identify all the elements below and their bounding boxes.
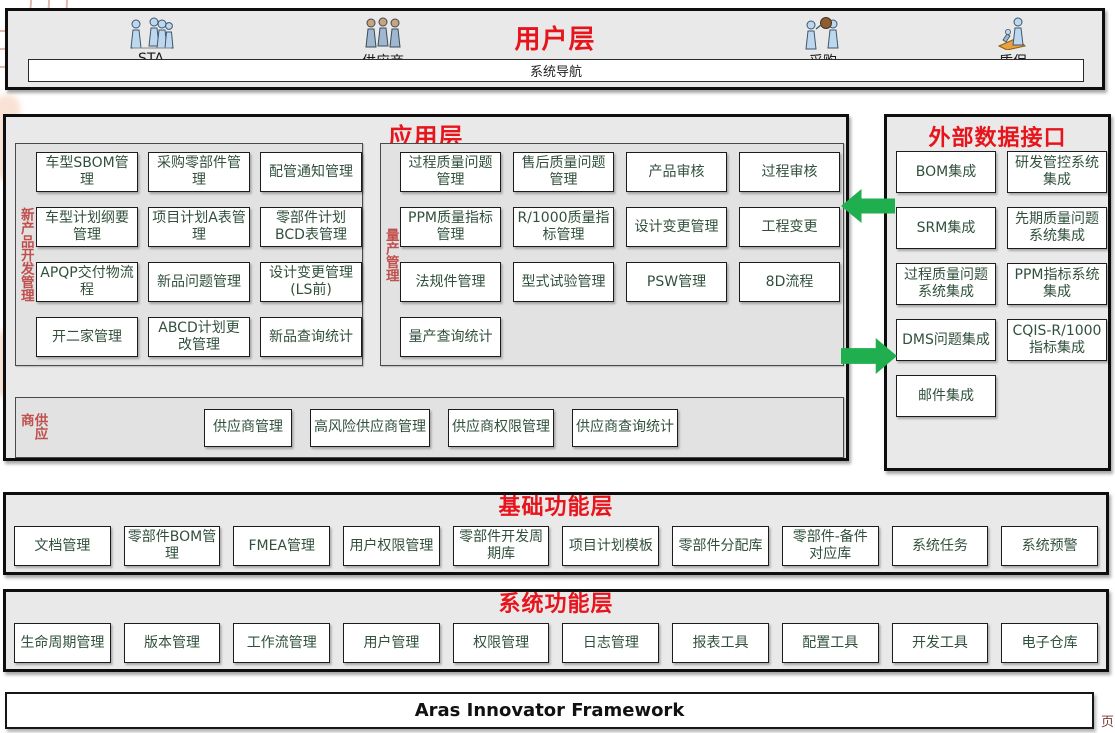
module-box: 设计变更管理 xyxy=(626,207,727,247)
base-items-row: 文档管理零部件BOM管理FMEA管理用户权限管理零部件开发周期库项目计划模板零部… xyxy=(14,526,1098,566)
external-items-grid: BOM集成研发管控系统集成SRM集成先期质量问题系统集成过程质量问题系统集成PP… xyxy=(896,151,1107,417)
user-layer-panel: 用户层 STA 供应商 xyxy=(5,8,1105,90)
function-box: 文档管理 xyxy=(14,526,111,566)
module-box: 法规件管理 xyxy=(400,262,501,302)
function-box: 生命周期管理 xyxy=(14,623,111,663)
integration-box: 邮件集成 xyxy=(896,375,996,417)
group-label-vertical: 供应商 xyxy=(18,413,46,443)
system-function-layer-panel: 系统功能层 生命周期管理版本管理工作流管理用户管理权限管理日志管理报表工具配置工… xyxy=(3,589,1109,672)
function-box: 零部件-备件对应库 xyxy=(782,526,879,566)
group-label-vertical: 新产品开发管理 xyxy=(18,207,32,302)
mp-items-grid: 过程质量问题管理售后质量问题管理产品审核过程审核PPM质量指标管理R/1000质… xyxy=(400,152,840,357)
module-box: 新品问题管理 xyxy=(148,262,250,302)
function-box: 权限管理 xyxy=(453,623,550,663)
module-box: 工程变更 xyxy=(739,207,840,247)
module-box: 高风险供应商管理 xyxy=(310,409,430,447)
function-box: 工作流管理 xyxy=(233,623,330,663)
module-box: PSW管理 xyxy=(626,262,727,302)
system-layer-title: 系统功能层 xyxy=(6,593,1106,617)
function-box: FMEA管理 xyxy=(233,526,330,566)
application-layer-panel: 应用层 新产品开发管理 车型SBOM管理采购零部件管理配管通知管理车型计划纲要管… xyxy=(3,114,849,461)
external-layer-title: 外部数据接口 xyxy=(887,120,1108,152)
integration-box: PPM指标系统集成 xyxy=(1007,263,1107,305)
system-items-row: 生命周期管理版本管理工作流管理用户管理权限管理日志管理报表工具配置工具开发工具电… xyxy=(14,623,1098,663)
integration-box: BOM集成 xyxy=(896,151,996,193)
integration-box: CQIS-R/1000指标集成 xyxy=(1007,319,1107,361)
module-box: PPM质量指标管理 xyxy=(400,207,501,247)
watermark-char: 页 xyxy=(1101,711,1114,730)
module-box: R/1000质量指标管理 xyxy=(513,207,614,247)
module-box: 量产查询统计 xyxy=(400,317,501,357)
function-box: 版本管理 xyxy=(124,623,221,663)
module-box: 新品查询统计 xyxy=(260,317,362,357)
integration-box: 先期质量问题系统集成 xyxy=(1007,207,1107,249)
module-box: 车型SBOM管理 xyxy=(36,152,138,192)
group-mass-production: 量产管理 过程质量问题管理售后质量问题管理产品审核过程审核PPM质量指标管理R/… xyxy=(380,143,844,366)
function-box: 用户权限管理 xyxy=(343,526,440,566)
function-box: 用户管理 xyxy=(343,623,440,663)
module-box: 项目计划A表管理 xyxy=(148,207,250,247)
module-box: APQP交付物流程 xyxy=(36,262,138,302)
module-box: 开二家管理 xyxy=(36,317,138,357)
function-box: 配置工具 xyxy=(782,623,879,663)
module-box: 过程审核 xyxy=(739,152,840,192)
module-box: 车型计划纲要管理 xyxy=(36,207,138,247)
group-supplier: 供应商 供应商管理高风险供应商管理供应商权限管理供应商查询统计 xyxy=(15,397,844,458)
framework-bar: Aras Innovator Framework xyxy=(5,692,1094,729)
npd-items-grid: 车型SBOM管理采购零部件管理配管通知管理车型计划纲要管理项目计划A表管理零部件… xyxy=(36,152,362,357)
module-box: ABCD计划更改管理 xyxy=(148,317,250,357)
module-box: 售后质量问题管理 xyxy=(513,152,614,192)
function-box: 零部件开发周期库 xyxy=(453,526,550,566)
function-box: 系统预警 xyxy=(1001,526,1098,566)
function-box: 开发工具 xyxy=(892,623,989,663)
group-label-vertical: 量产管理 xyxy=(383,228,397,282)
module-box: 型式试验管理 xyxy=(513,262,614,302)
function-box: 报表工具 xyxy=(672,623,769,663)
function-box: 电子仓库 xyxy=(1001,623,1098,663)
integration-box: 过程质量问题系统集成 xyxy=(896,263,996,305)
function-box: 零部件BOM管理 xyxy=(124,526,221,566)
module-box: 供应商权限管理 xyxy=(448,409,554,447)
person-inspect-icon xyxy=(991,16,1035,50)
module-box: 过程质量问题管理 xyxy=(400,152,501,192)
supplier-items-row: 供应商管理高风险供应商管理供应商权限管理供应商查询统计 xyxy=(204,409,678,447)
module-box: 产品审核 xyxy=(626,152,727,192)
module-box: 采购零部件管理 xyxy=(148,152,250,192)
integration-box: SRM集成 xyxy=(896,207,996,249)
module-box: 设计变更管理(LS前) xyxy=(260,262,362,302)
module-box: 供应商管理 xyxy=(204,409,292,447)
people-package-icon xyxy=(801,16,845,50)
integration-box: DMS问题集成 xyxy=(896,319,996,361)
external-data-interface-panel: 外部数据接口 BOM集成研发管控系统集成SRM集成先期质量问题系统集成过程质量问… xyxy=(884,114,1111,471)
group-new-product-development: 新产品开发管理 车型SBOM管理采购零部件管理配管通知管理车型计划纲要管理项目计… xyxy=(15,143,363,366)
module-box: 8D流程 xyxy=(739,262,840,302)
function-box: 日志管理 xyxy=(562,623,659,663)
module-box: 供应商查询统计 xyxy=(572,409,678,447)
function-box: 零部件分配库 xyxy=(672,526,769,566)
base-function-layer-panel: 基础功能层 文档管理零部件BOM管理FMEA管理用户权限管理零部件开发周期库项目… xyxy=(3,492,1109,575)
function-box: 系统任务 xyxy=(892,526,989,566)
module-box: 配管通知管理 xyxy=(260,152,362,192)
base-layer-title: 基础功能层 xyxy=(6,496,1106,520)
module-box: 零部件计划BCD表管理 xyxy=(260,207,362,247)
people-group-icon xyxy=(127,16,175,50)
integration-box: 研发管控系统集成 xyxy=(1007,151,1107,193)
system-nav-bar: 系统导航 xyxy=(28,59,1084,82)
function-box: 项目计划模板 xyxy=(562,526,659,566)
people-group-icon xyxy=(362,16,404,50)
